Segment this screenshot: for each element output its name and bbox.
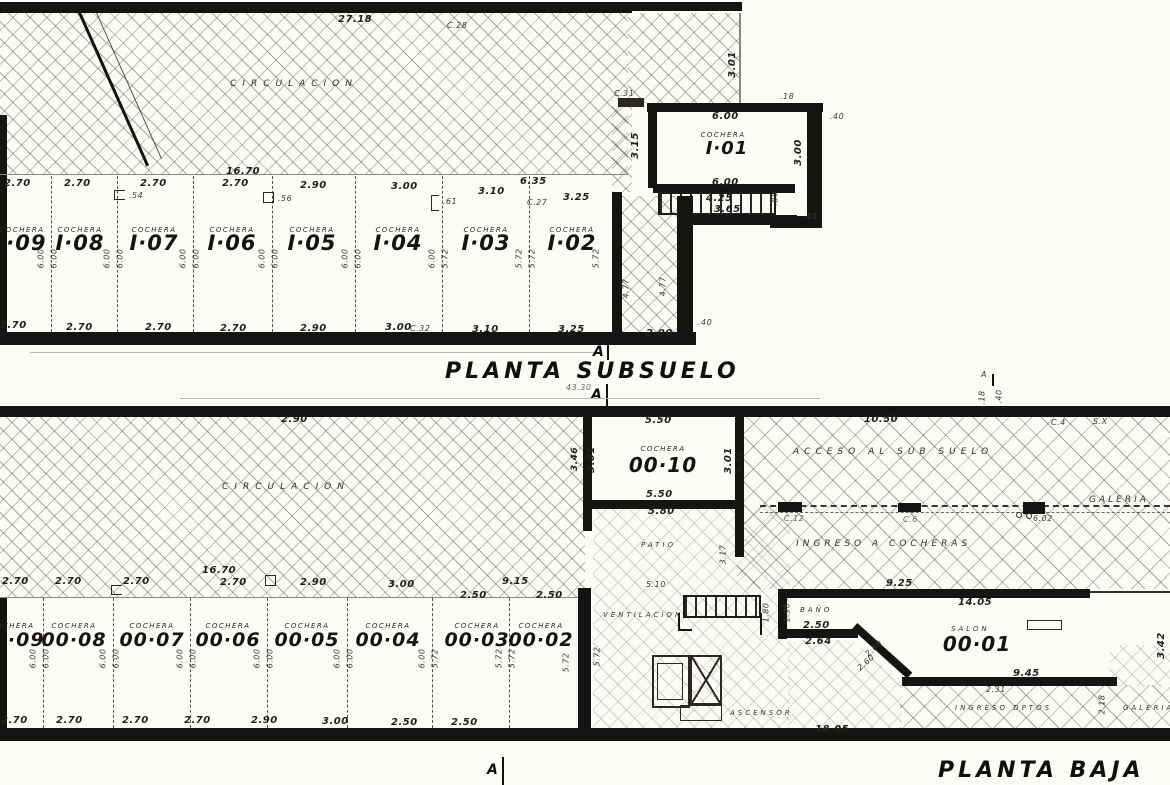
dim-corridor-bottom: 2.00 — [646, 328, 673, 339]
depth-dim: 6.00 — [41, 649, 50, 669]
dim: 3.10 — [478, 186, 505, 197]
dim: 3.00 — [388, 579, 415, 590]
wall-left-baja — [0, 598, 7, 728]
wall-bottom — [0, 332, 696, 345]
depth-dim: 6.00 — [188, 649, 197, 669]
cochera-label: COCHERA — [635, 445, 691, 453]
section-tick — [607, 342, 609, 360]
dim-i01-right: 3.00 — [793, 139, 804, 166]
dim: 2.70 — [56, 715, 83, 726]
ref-c27: C.27 — [527, 198, 547, 207]
depth-dim: 6.00 — [175, 649, 184, 669]
fixture-mark — [265, 575, 276, 586]
hatch-circulation-baja — [0, 417, 585, 598]
elevator-cab — [657, 663, 683, 700]
room-galeria: GALERIA — [1089, 495, 1149, 505]
dim: 2.70 — [145, 322, 172, 333]
depth-dim: 6.00 — [102, 249, 111, 269]
depth-dim: 5.72 — [514, 249, 523, 269]
depth-dim: 6.00 — [353, 249, 362, 269]
depth-dim: 5.72 — [494, 649, 503, 669]
wall-mark: .18 — [978, 390, 987, 404]
marker-a-small: A — [981, 370, 987, 379]
wall-mark: .40 — [698, 318, 712, 327]
dim-salon: 9.45 — [1013, 668, 1040, 679]
dim-i01-top: 6.00 — [712, 111, 739, 122]
stall-id-c10: 00·10 — [623, 453, 703, 477]
dim: 18.05 — [815, 724, 849, 735]
dim: 2.70 — [220, 577, 247, 588]
dim-salon: 1.90 — [782, 603, 791, 623]
depth-dim: 6.00 — [270, 249, 279, 269]
wall-c10-stub-l — [583, 507, 592, 531]
ramp-bump — [1023, 502, 1045, 514]
ramp-dashed-line — [760, 505, 1170, 507]
wall-mark: .40 — [803, 212, 817, 221]
stall-id-i01: I·01 — [691, 138, 763, 159]
dim: 2.90 — [251, 715, 278, 726]
room-ventilacion: VENTILACION — [603, 611, 683, 619]
dim: 2.70 — [66, 322, 93, 333]
dim: 3.00 — [385, 322, 412, 333]
salon-top-thin — [1090, 591, 1170, 593]
section-marker-a: A — [487, 762, 498, 778]
depth-dim: 6.00 — [111, 649, 120, 669]
depth-dim: 6.00 — [98, 649, 107, 669]
dim: 3.00 — [391, 181, 418, 192]
ref-c6: C.6 — [903, 515, 918, 524]
depth-dim: 6.00 — [28, 649, 37, 669]
dim-line — [180, 398, 820, 399]
wall-mark: .18 — [780, 92, 794, 101]
dim-overall-top: 27.18 — [338, 14, 372, 25]
dim-total-row: 16.70 — [202, 565, 236, 576]
dim: 2.70 — [2, 576, 29, 587]
depth-dim: 6.00 — [257, 249, 266, 269]
room-ingreso-dptos: INGRESO DPTOS — [955, 704, 1052, 712]
wall-patio-left — [578, 588, 591, 730]
stall-id: I·04 — [358, 231, 438, 255]
dim: 2.90 — [300, 323, 327, 334]
fixture-mark — [114, 190, 125, 200]
dim-c10-side: 3.01 — [586, 446, 597, 473]
hatch-boundary-line — [739, 13, 741, 103]
dim-stair: 4.25 — [706, 193, 733, 204]
fixture-dim: .54 — [129, 191, 143, 200]
depth-dim: 5.72 — [561, 653, 570, 673]
depth-dim: 5.72 — [440, 249, 449, 269]
ref-c31: C.31 — [614, 89, 634, 98]
depth-dim: 6.00 — [36, 249, 45, 269]
depth-dim: 6.00 — [417, 649, 426, 669]
dim-stairs: 5.10 — [646, 580, 666, 589]
wall-corridor-left — [612, 192, 622, 345]
room-patio: PATIO — [641, 541, 676, 549]
depth-dim: 5.72 — [592, 647, 601, 667]
ramp-bump — [898, 503, 921, 512]
stall-id-c01: 00·01 — [937, 632, 1017, 656]
ref-c32: C.32 — [410, 324, 430, 333]
wall-i01-right — [807, 103, 822, 228]
depth-dim: 5.72 — [591, 249, 600, 269]
ref-c28: C.28 — [447, 21, 467, 30]
stair-rail — [678, 629, 692, 631]
dim: 2.70 — [222, 178, 249, 189]
dim: 3.10 — [472, 324, 499, 335]
depth-dim: 6.00 — [332, 649, 341, 669]
wall-corridor-right — [677, 196, 693, 345]
room-circulacion-sub: CIRCULACION — [230, 79, 358, 89]
title-baja: PLANTA BAJA — [938, 758, 1145, 783]
dim-salon: 14.05 — [958, 597, 992, 608]
fixture-dim: .56 — [278, 194, 292, 203]
marker-tick — [992, 374, 994, 386]
dim: 2.50 — [391, 717, 418, 728]
dim-i01-left: 3.15 — [630, 132, 641, 159]
dim: 2.70 — [55, 576, 82, 587]
dim: 2.70 — [64, 178, 91, 189]
dim-total-row: 16.70 — [226, 166, 260, 177]
dim-c10-out: 3.46 — [570, 447, 580, 471]
room-ascensor: ASCENSOR — [730, 709, 793, 717]
hatch-subsuelo-right — [628, 13, 741, 103]
dim-corridor: 4.77 — [621, 279, 630, 299]
depth-dim: 6.00 — [265, 649, 274, 669]
counter-fixture — [1027, 620, 1062, 630]
depth-dim: 6.00 — [345, 649, 354, 669]
stall-top-line — [0, 174, 628, 175]
dim-salon: 2.64 — [805, 636, 832, 647]
dim: 3.25 — [563, 192, 590, 203]
fixture-dim: .61 — [443, 197, 457, 206]
ramp-circle-mark — [1026, 513, 1032, 519]
dim-c10-out: 3.46 — [735, 450, 745, 474]
dim-salon: 3.42 — [1156, 632, 1167, 659]
dim-stair-width: .80 — [771, 191, 780, 205]
dim: 2.70 — [140, 178, 167, 189]
wall-i01-left — [648, 110, 657, 188]
room-galeria-2: GALERIA — [1123, 704, 1170, 712]
dim: 2.50 — [536, 590, 563, 601]
depth-dim: 6.00 — [340, 249, 349, 269]
depth-dim: 6.00 — [191, 249, 200, 269]
dim: 6.35 — [520, 176, 547, 187]
ref-c12: C.12 — [784, 514, 804, 523]
section-marker-a: A — [591, 387, 602, 403]
dim: 2.70 — [184, 715, 211, 726]
lintel-c31 — [618, 98, 644, 107]
dim-salon: 2.31 — [986, 685, 1006, 694]
room-circulacion-baja: CIRCULACION — [222, 482, 350, 492]
dim: 3.25 — [558, 324, 585, 335]
room-ingreso-cocheras: INGRESO A COCHERAS — [796, 539, 971, 549]
dim-salon: 2.50 — [803, 620, 830, 631]
dim: 2.90 — [300, 180, 327, 191]
dim-corridor: 4.77 — [658, 277, 667, 297]
dim-salon: 1.80 — [761, 603, 770, 623]
dim: 2.70 — [1, 715, 28, 726]
dim: 9.15 — [502, 576, 529, 587]
dim-hatch-right: 3.01 — [727, 51, 738, 78]
dim-c10-bottom: 5.50 — [646, 489, 673, 500]
dim: 2.70 — [4, 178, 31, 189]
ramp-dashed-line-2 — [760, 512, 1170, 513]
wall-salon-bottom — [902, 677, 1117, 686]
hatch-circulation-subsuelo — [0, 13, 628, 175]
depth-dim: 6.00 — [115, 249, 124, 269]
title-subsuelo: PLANTA SUBSUELO — [445, 359, 740, 384]
stall-top-line-baja — [0, 597, 585, 598]
depth-dim: 5.72 — [430, 649, 439, 669]
dim: 2.90 — [281, 414, 308, 425]
dim-ramp: 6.02 — [1033, 514, 1053, 523]
section-marker-a: A — [593, 344, 604, 360]
depth-dim: 6.00 — [178, 249, 187, 269]
stair-landing — [680, 705, 722, 721]
room-bano: BAÑO — [800, 606, 832, 614]
dim: 2.50 — [451, 717, 478, 728]
dim: 2.70 — [122, 715, 149, 726]
depth-dim: 6.00 — [252, 649, 261, 669]
stairs-patio — [683, 595, 761, 618]
depth-dim: 6.00 — [49, 249, 58, 269]
dim-salon: 2.18 — [1097, 695, 1106, 715]
stair-well — [690, 655, 722, 705]
ramp-bump — [778, 502, 802, 512]
dim-c10-below: 5.80 — [648, 506, 675, 517]
ref-sx: S.X — [1093, 417, 1108, 426]
depth-dim: 5.72 — [527, 249, 536, 269]
hatch-corridor — [622, 196, 677, 332]
wall-mark: .40 — [830, 112, 844, 121]
fixture-mark — [263, 192, 274, 203]
dim: 3.00 — [322, 716, 349, 727]
dim: 2.90 — [300, 577, 327, 588]
floor-plan-scan: 27.18 C.28 CIRCULACION 2.70 2.70 2.70 2.… — [0, 0, 1170, 785]
depth-dim: 6.00 — [427, 249, 436, 269]
fixture-mark — [111, 585, 122, 595]
wall-c10-stub-r — [735, 507, 744, 557]
room-acceso: ACCESO AL SUB SUELO — [793, 447, 993, 457]
dim: 10.50 — [864, 414, 898, 425]
ramp-circle-mark — [1016, 512, 1022, 518]
wall-top — [0, 2, 632, 13]
depth-dim: 5.72 — [507, 649, 516, 669]
dim-i01-bottom: 6.00 — [712, 177, 739, 188]
dim: 2.70 — [0, 320, 27, 331]
dim-salon: 9.25 — [886, 578, 913, 589]
wall-top-right — [630, 2, 742, 11]
dim-c10-side: 3.01 — [723, 447, 734, 474]
stall-id: 00·04 — [348, 629, 428, 651]
fixture-mark — [431, 195, 439, 211]
ref-c4: C.4 — [1051, 418, 1066, 427]
dim-stair: 3.65 — [714, 204, 741, 215]
dim: 2.50 — [460, 590, 487, 601]
wall-salon-top — [778, 589, 1090, 598]
section-tick — [502, 757, 504, 785]
dim-overall: 43.30 — [566, 383, 591, 392]
dim: 2.70 — [123, 576, 150, 587]
dim: 2.70 — [220, 323, 247, 334]
wall-mark: .40 — [995, 389, 1004, 403]
dim-patio: 3.17 — [718, 545, 727, 565]
dim-c10-top: 5.50 — [645, 415, 672, 426]
dim-line — [30, 352, 600, 353]
